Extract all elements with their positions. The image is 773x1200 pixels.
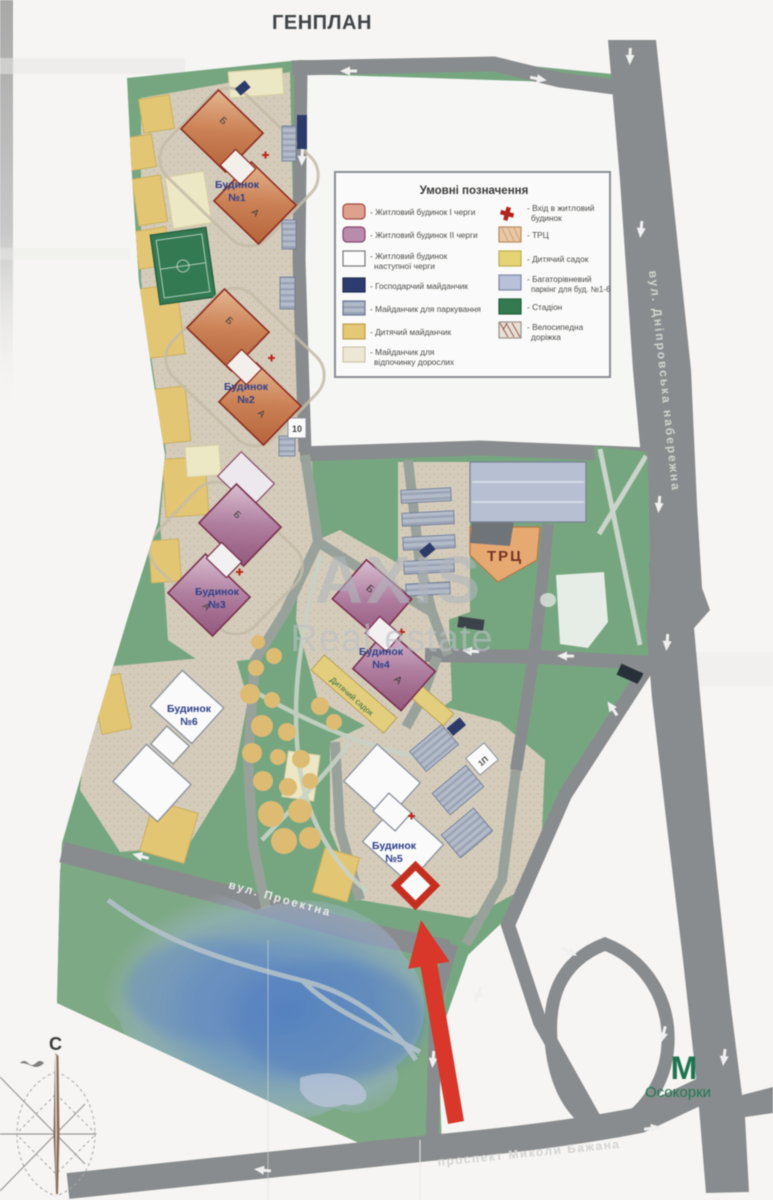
svg-text:- Вхід в житловий: - Вхід в житловий	[527, 203, 595, 213]
svg-text:Будинок: Будинок	[195, 586, 240, 598]
svg-text:ТРЦ: ТРЦ	[487, 548, 523, 565]
svg-text:Будинок: Будинок	[167, 703, 212, 715]
svg-text:- Велосипедна: - Велосипедна	[527, 322, 584, 332]
svg-text:№2: №2	[237, 394, 255, 406]
svg-text:- Дитячий садок: - Дитячий садок	[527, 254, 589, 264]
svg-text:№3: №3	[208, 599, 226, 611]
svg-text:М: М	[671, 1050, 698, 1086]
svg-text:Осокорки: Осокорки	[645, 1084, 711, 1101]
svg-text:відпочинку дорослих: відпочинку дорослих	[374, 357, 455, 367]
svg-text:- Майданчик для паркування: - Майданчик для паркування	[370, 304, 481, 314]
svg-text:- Дитячий майданчик: - Дитячий майданчик	[370, 327, 451, 337]
svg-text:- Господарчий майданчик: - Господарчий майданчик	[370, 281, 468, 291]
svg-text:Будинок: Будинок	[224, 381, 269, 393]
svg-text:- Житловий будинок І черги: - Житловий будинок І черги	[370, 207, 476, 217]
svg-text:- Стадіон: - Стадіон	[527, 302, 562, 312]
svg-text:паркінг для буд. №1-6: паркінг для буд. №1-6	[531, 285, 610, 294]
svg-text:№6: №6	[180, 716, 198, 728]
svg-text:- Житловий будинок: - Житловий будинок	[370, 251, 448, 261]
svg-text:ГЕНПЛАН: ГЕНПЛАН	[272, 12, 372, 34]
svg-text:AXIS: AXIS	[315, 543, 483, 618]
svg-text:№5: №5	[385, 853, 403, 865]
svg-text:наступної черги: наступної черги	[374, 261, 435, 271]
svg-text:Будинок: Будинок	[215, 179, 260, 191]
svg-text:- Житловий будинок ІІ черги: - Житловий будинок ІІ черги	[370, 230, 478, 240]
svg-text:доріжка: доріжка	[531, 332, 561, 342]
svg-text:Будинок: Будинок	[372, 840, 417, 852]
svg-text:- ТРЦ: - ТРЦ	[527, 230, 549, 240]
svg-text:С: С	[49, 1034, 62, 1054]
svg-text:№4: №4	[372, 659, 390, 671]
svg-text:- Багаторівневий: - Багаторівневий	[527, 274, 592, 284]
svg-text:Будинок: Будинок	[359, 646, 404, 658]
svg-text:№1: №1	[228, 192, 246, 204]
svg-text:- Майданчик для: - Майданчик для	[370, 347, 434, 357]
svg-text:Умовні позначення: Умовні позначення	[420, 185, 529, 197]
svg-text:10: 10	[292, 424, 302, 434]
svg-text:будинок: будинок	[531, 213, 562, 223]
